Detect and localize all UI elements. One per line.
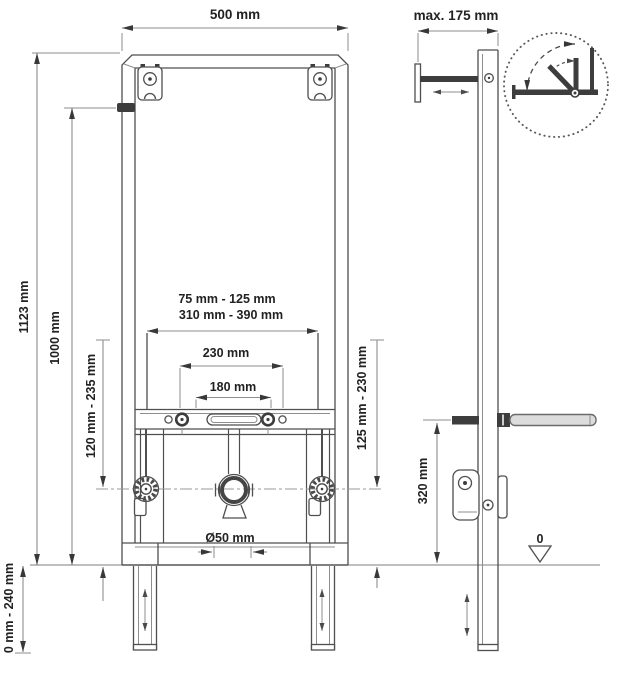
right-connection-fitting bbox=[309, 477, 335, 516]
dim-left-outlet-height: 120 mm - 235 mm bbox=[84, 340, 110, 601]
wall-bracket-arm bbox=[415, 64, 493, 102]
dim-front-width: 500 mm bbox=[122, 7, 348, 51]
marking-cam bbox=[117, 103, 135, 112]
dim-wall-distance-label: max. 175 mm bbox=[414, 8, 499, 23]
crossbar bbox=[135, 410, 335, 435]
dim-left-outlet-height-label: 120 mm - 235 mm bbox=[84, 354, 98, 458]
datum-symbol: 0 bbox=[529, 532, 551, 562]
leg-right bbox=[312, 566, 335, 650]
dim-stud-spacing-inner: 180 mm bbox=[196, 380, 271, 408]
dim-right-outlet-height: 125 mm - 230 mm bbox=[355, 340, 384, 588]
leg-housings bbox=[122, 543, 348, 565]
installation-frame-drawing: 0 500 mm max. 175 mm bbox=[0, 0, 619, 675]
dim-support-rod-height-label: 320 mm bbox=[416, 458, 430, 505]
dim-wall-distance: max. 175 mm bbox=[414, 8, 499, 62]
dim-marking-height-label: 1000 mm bbox=[48, 311, 62, 365]
dim-right-outlet-height-label: 125 mm - 230 mm bbox=[355, 346, 369, 450]
dim-front-width-label: 500 mm bbox=[210, 7, 260, 22]
dim-drain-diameter-label: Ø50 mm bbox=[205, 531, 254, 545]
dim-total-height-label: 1123 mm bbox=[17, 281, 31, 334]
floor-datum-label: 0 bbox=[537, 532, 544, 546]
dim-foot-extension: 0 mm - 240 mm bbox=[2, 563, 31, 653]
dim-fixing-range: 75 mm - 125 mm 310 mm - 390 mm bbox=[147, 292, 318, 331]
mounting-tab-left bbox=[138, 64, 162, 100]
dim-foot-extension-label: 0 mm - 240 mm bbox=[2, 563, 16, 653]
dim-fixing-range-upper-label: 75 mm - 125 mm bbox=[178, 292, 275, 306]
dim-drain-diameter: Ø50 mm bbox=[198, 531, 267, 558]
support-rod bbox=[452, 413, 596, 427]
technical-drawing: 0 500 mm max. 175 mm bbox=[0, 0, 619, 675]
dim-fixing-range-lower-label: 310 mm - 390 mm bbox=[179, 308, 283, 322]
dim-stud-spacing-outer-label: 230 mm bbox=[203, 346, 250, 360]
fixing-bracket bbox=[453, 470, 507, 520]
dim-marking-height: 1000 mm bbox=[48, 108, 116, 565]
dim-support-rod-height: 320 mm bbox=[416, 420, 451, 563]
dimensions: 500 mm max. 175 mm 1123 mm 1000 mm 120 m… bbox=[2, 7, 498, 653]
mounting-tab-right bbox=[308, 64, 332, 100]
side-view: 0 bbox=[415, 50, 596, 651]
leg-left bbox=[134, 566, 157, 650]
dim-stud-spacing-outer: 230 mm bbox=[180, 346, 283, 408]
detail-circle bbox=[504, 33, 608, 137]
dim-stud-spacing-inner-label: 180 mm bbox=[210, 380, 257, 394]
drain-pipe bbox=[216, 475, 253, 519]
frame-struts bbox=[141, 429, 330, 543]
dim-total-height: 1123 mm bbox=[17, 53, 120, 565]
left-connection-fitting bbox=[134, 477, 159, 516]
